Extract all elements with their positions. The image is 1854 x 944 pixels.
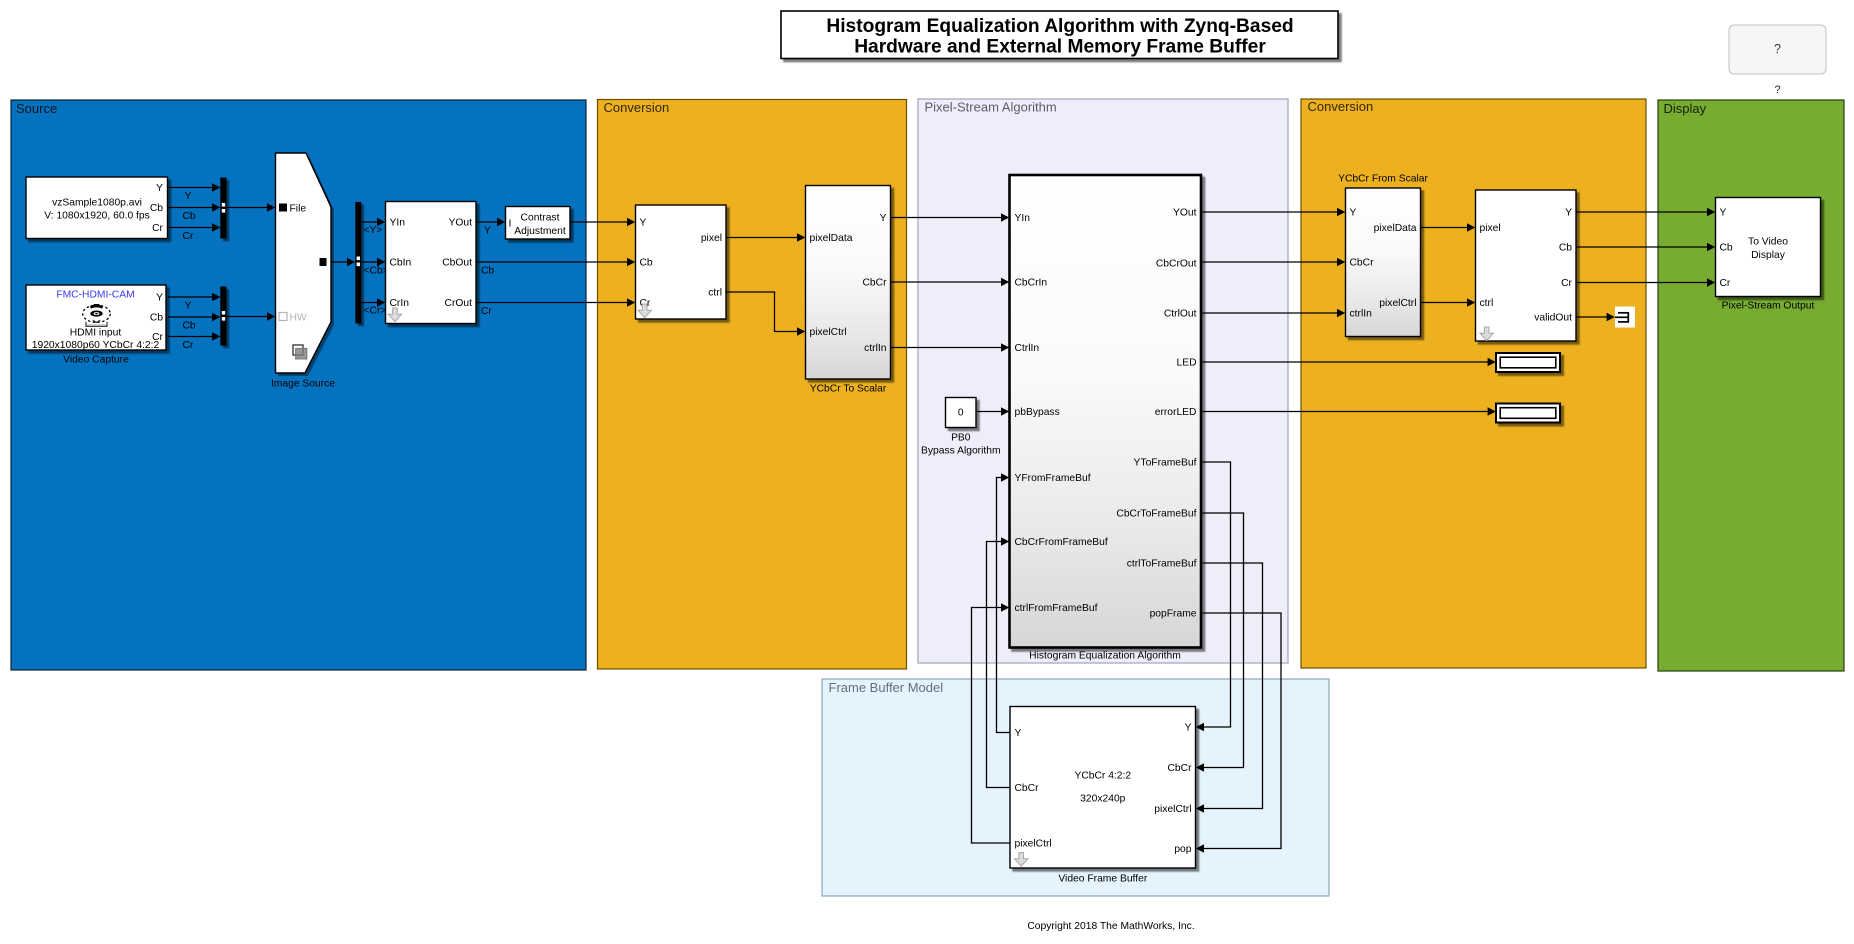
svg-text:I: I [509,218,512,229]
svg-text:Cr: Cr [481,306,492,317]
svg-text:Display: Display [1751,250,1786,261]
svg-text:YIn: YIn [1015,213,1031,224]
svg-text:CbCr: CbCr [1167,763,1192,774]
svg-text:Cr: Cr [183,340,194,351]
svg-text:Display: Display [1664,101,1707,116]
svg-text:V: 1080x1920, 60.0 fps: V: 1080x1920, 60.0 fps [44,211,150,222]
svg-text:Y: Y [1350,208,1357,219]
svg-text:ctrlIn: ctrlIn [864,343,887,354]
svg-text:Cr: Cr [1720,278,1731,289]
svg-text:CbCrFromFrameBuf: CbCrFromFrameBuf [1015,537,1108,548]
svg-text:pop: pop [1174,844,1191,855]
svg-text:YOut: YOut [449,218,473,229]
svg-text:Y: Y [156,183,163,194]
svg-text:Copyright 2018 The MathWorks,: Copyright 2018 The MathWorks, Inc. [1027,921,1194,932]
svg-text:File: File [290,203,307,214]
svg-text:YCbCr 4:2:2: YCbCr 4:2:2 [1074,771,1131,782]
svg-text:CbIn: CbIn [390,258,412,269]
svg-text:Cr: Cr [183,231,194,242]
svg-text:LED: LED [1176,358,1196,369]
svg-text:YOut: YOut [1173,208,1197,219]
svg-text:CrOut: CrOut [445,298,473,309]
svg-text:YIn: YIn [390,218,406,229]
svg-text:pixelCtrl: pixelCtrl [1379,298,1416,309]
svg-text:Image Source: Image Source [271,378,335,389]
svg-text:YToFrameBuf: YToFrameBuf [1134,458,1197,469]
svg-text:PB0: PB0 [951,432,971,443]
svg-text:Y: Y [880,213,887,224]
svg-text:Cb: Cb [640,258,653,269]
svg-text:pixelData: pixelData [1374,223,1417,234]
svg-text:YCbCr From Scalar: YCbCr From Scalar [1338,173,1428,184]
svg-text:Frame Buffer Model: Frame Buffer Model [829,680,944,695]
svg-text:YFromFrameBuf: YFromFrameBuf [1015,473,1091,484]
svg-text:Y: Y [640,218,647,229]
svg-text:Cb: Cb [481,266,494,277]
svg-text:CbCr: CbCr [862,278,887,289]
svg-text:ctrlIn: ctrlIn [1350,309,1373,320]
svg-text:Y: Y [484,226,491,237]
svg-text:YCbCr To Scalar: YCbCr To Scalar [810,383,887,394]
svg-text:HW: HW [290,312,307,323]
svg-text:<Cr>: <Cr> [364,306,387,317]
svg-text:Cb: Cb [150,313,163,324]
svg-text:CbCr: CbCr [1015,783,1040,794]
svg-text:Y: Y [1015,728,1022,739]
svg-text:CbCr: CbCr [1350,258,1375,269]
svg-text:?: ? [1774,42,1781,56]
svg-text:Y: Y [156,293,163,304]
svg-text:Video Capture: Video Capture [63,354,129,365]
svg-text:Cb: Cb [1559,243,1572,254]
svg-text:Hardware and External Memory F: Hardware and External Memory Frame Buffe… [854,36,1266,57]
svg-text:CtrlIn: CtrlIn [1015,343,1040,354]
svg-text:CbCrOut: CbCrOut [1156,259,1197,270]
svg-text:Conversion: Conversion [604,100,670,115]
svg-text:CbCrToFrameBuf: CbCrToFrameBuf [1116,509,1196,520]
svg-text:Conversion: Conversion [1308,99,1374,114]
svg-text:Histogram Equalization Algorit: Histogram Equalization Algorithm with Zy… [826,16,1293,37]
svg-text:ctrl: ctrl [708,288,722,299]
svg-text:CbCrIn: CbCrIn [1015,278,1048,289]
svg-text:320x240p: 320x240p [1080,794,1126,805]
svg-text:pixelData: pixelData [810,233,853,244]
svg-text:HDMI input: HDMI input [70,328,122,339]
svg-text:To Video: To Video [1748,237,1788,248]
svg-text:Cb: Cb [183,211,196,222]
svg-text:Cr: Cr [1561,278,1572,289]
svg-text:validOut: validOut [1534,313,1572,324]
svg-text:Bypass Algorithm: Bypass Algorithm [921,446,1001,457]
svg-text:Video Frame Buffer: Video Frame Buffer [1058,874,1147,885]
svg-text:Cb: Cb [183,321,196,332]
svg-text:pixelCtrl: pixelCtrl [810,327,847,338]
svg-text:errorLED: errorLED [1155,407,1197,418]
svg-text:1920x1080p60 YCbCr 4:2:2: 1920x1080p60 YCbCr 4:2:2 [32,340,160,351]
svg-text:ctrlFromFrameBuf: ctrlFromFrameBuf [1015,603,1098,614]
svg-text:CbOut: CbOut [442,258,472,269]
svg-text:Cr: Cr [152,223,163,234]
svg-text:Y: Y [185,191,192,202]
svg-text:Histogram Equalization Algorit: Histogram Equalization Algorithm [1029,651,1181,662]
svg-text:Cb: Cb [1720,243,1733,254]
svg-text:Contrast: Contrast [521,213,560,224]
svg-text:pixel: pixel [1480,223,1501,234]
svg-text:Y: Y [1185,723,1192,734]
svg-text:ctrlToFrameBuf: ctrlToFrameBuf [1127,559,1197,570]
svg-text:vzSample1080p.avi: vzSample1080p.avi [52,197,142,208]
svg-text:?: ? [1774,84,1780,96]
svg-text:FMC-HDMI-CAM: FMC-HDMI-CAM [56,290,134,301]
svg-text:Pixel-Stream Output: Pixel-Stream Output [1722,301,1815,312]
svg-text:Cr: Cr [152,332,163,343]
svg-text:Adjustment: Adjustment [514,226,566,237]
svg-text:Pixel-Stream Algorithm: Pixel-Stream Algorithm [925,100,1057,115]
svg-text:Y: Y [185,301,192,312]
svg-text:Cb: Cb [150,203,163,214]
svg-text:0: 0 [958,408,964,419]
svg-text:ctrl: ctrl [1480,298,1494,309]
svg-text:pixel: pixel [701,233,722,244]
svg-text:pixelCtrl: pixelCtrl [1154,804,1191,815]
svg-text:<Y>: <Y> [364,225,383,236]
svg-text:Y: Y [1565,208,1572,219]
svg-text:pixelCtrl: pixelCtrl [1015,839,1052,850]
svg-text:CtrlOut: CtrlOut [1164,309,1197,320]
svg-text:pbBypass: pbBypass [1015,407,1060,418]
svg-text:Source: Source [16,101,57,116]
svg-text:Y: Y [1720,208,1727,219]
svg-text:popFrame: popFrame [1150,609,1197,620]
